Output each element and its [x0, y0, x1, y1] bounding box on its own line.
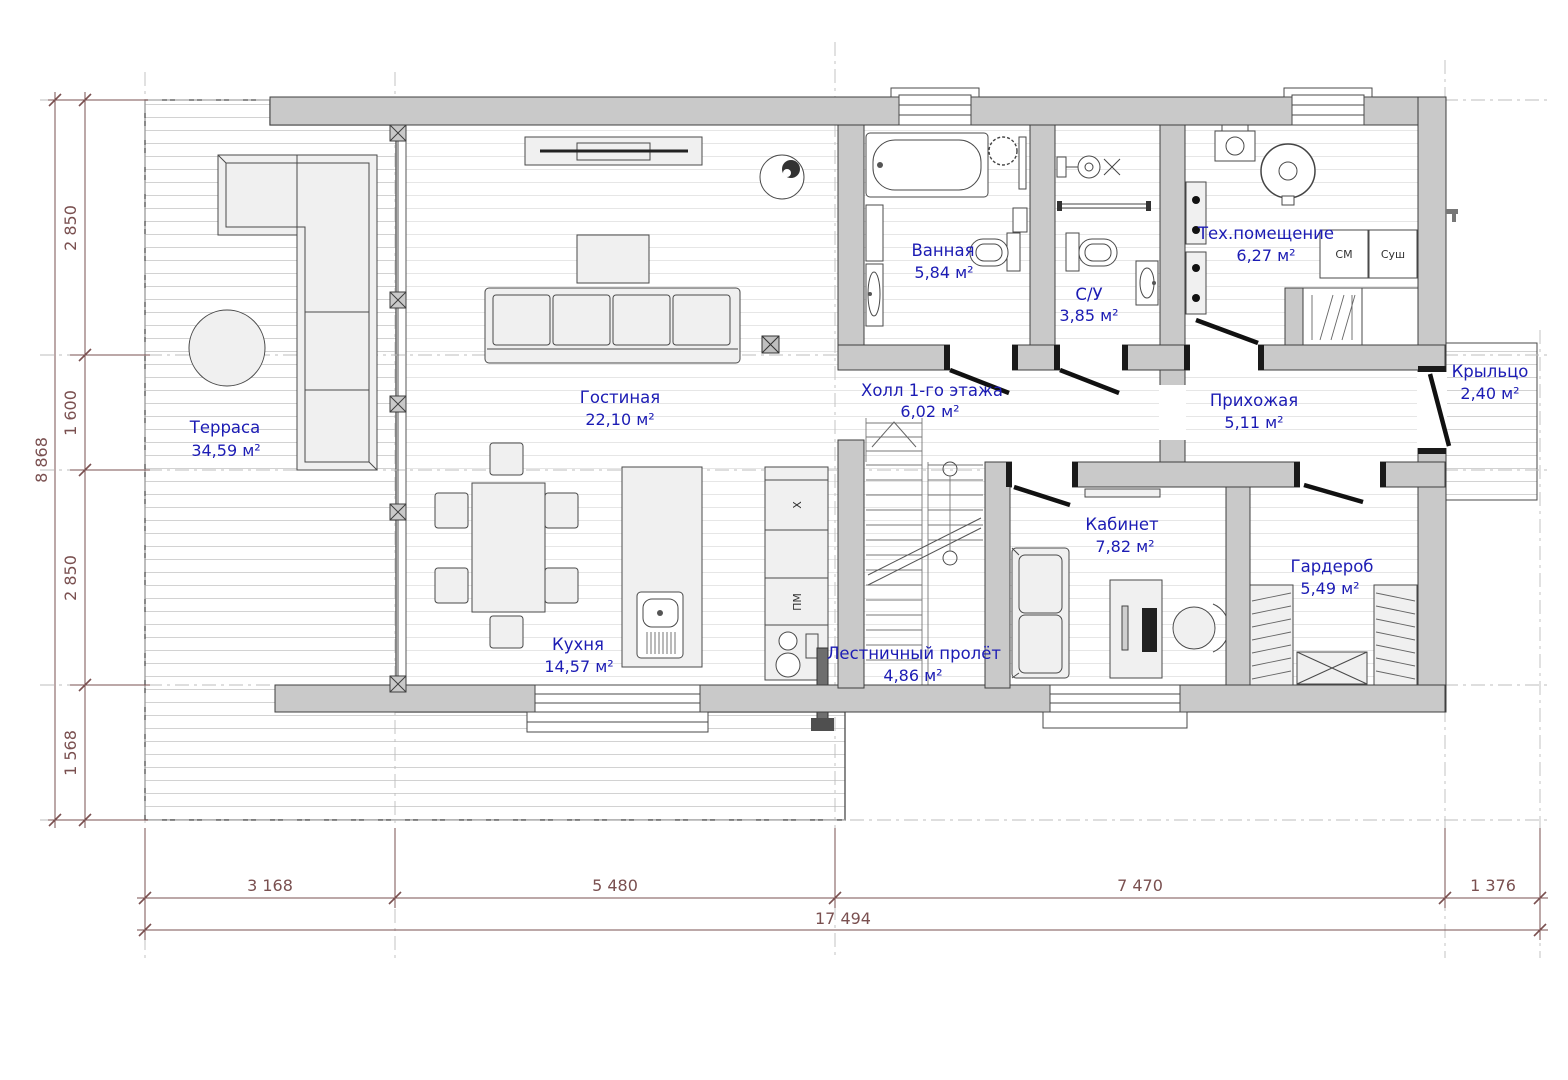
- dishwasher-label: ПМ: [791, 593, 804, 611]
- label-living: Гостиная: [580, 388, 660, 407]
- towel-radiator: [1019, 137, 1026, 189]
- label-tech: Тех.помещение: [1197, 224, 1334, 243]
- kitchen-island: [622, 467, 702, 667]
- area-kitchen: 14,57 м²: [544, 657, 613, 676]
- outdoor-tap-icon: [1446, 209, 1458, 222]
- bathroom-wall-box: [1013, 208, 1027, 232]
- dim-bottom-2: 5 480: [592, 876, 638, 895]
- area-terrace: 34,59 м²: [191, 441, 260, 460]
- bathroom-heater: [989, 137, 1017, 165]
- wc-basin: [1136, 261, 1158, 305]
- area-wc: 3,85 м²: [1059, 306, 1118, 325]
- dim-left-2: 1 600: [61, 390, 80, 436]
- area-tech: 6,27 м²: [1236, 246, 1295, 265]
- area-porch: 2,40 м²: [1460, 384, 1519, 403]
- dim-left-total: 8 868: [32, 437, 51, 483]
- dim-left-3: 2 850: [61, 555, 80, 601]
- area-office: 7,82 м²: [1095, 537, 1154, 556]
- washer-label: СМ: [1335, 248, 1352, 261]
- area-entry: 5,11 м²: [1224, 413, 1283, 432]
- hob-label: X: [791, 501, 804, 509]
- label-entry: Прихожая: [1210, 391, 1298, 410]
- bathtub: [866, 133, 988, 197]
- living-sofa: [485, 288, 740, 363]
- floor-lamp: [760, 155, 804, 199]
- washer-dryer: СМ Суш: [1320, 230, 1417, 278]
- dryer-label: Суш: [1381, 248, 1405, 261]
- terrace-round-table: [189, 310, 265, 386]
- label-hall: Холл 1-го этажа: [861, 381, 1003, 400]
- office-desk: [1110, 580, 1162, 678]
- dim-left-1: 2 850: [61, 205, 80, 251]
- label-wc: С/У: [1075, 285, 1102, 304]
- label-office: Кабинет: [1085, 515, 1159, 534]
- office-sofa: [1012, 548, 1069, 678]
- dim-left-4: 1 568: [61, 730, 80, 776]
- floor-outlet-marker: [762, 336, 779, 353]
- dim-bottom-4: 1 376: [1470, 876, 1516, 895]
- floor-plan: X ПМ: [0, 0, 1568, 1080]
- dim-bottom-3: 7 470: [1117, 876, 1163, 895]
- dim-bottom-total: 17 494: [815, 909, 871, 928]
- label-terrace: Терраса: [189, 418, 260, 437]
- bathroom-vanity: [866, 205, 883, 326]
- office-shelf: [1085, 489, 1160, 497]
- area-bathroom: 5,84 м²: [914, 263, 973, 282]
- tv-console: [525, 137, 702, 165]
- label-kitchen: Кухня: [552, 635, 604, 654]
- area-wardrobe: 5,49 м²: [1300, 579, 1359, 598]
- label-bathroom: Ванная: [911, 241, 974, 260]
- coffee-table: [577, 235, 649, 283]
- tech-closet: [1303, 288, 1418, 345]
- area-hall: 6,02 м²: [900, 402, 959, 421]
- label-stairs: Лестничный пролёт: [827, 644, 1001, 663]
- label-wardrobe: Гардероб: [1291, 557, 1374, 576]
- label-porch: Крыльцо: [1452, 362, 1529, 381]
- area-stairs: 4,86 м²: [883, 666, 942, 685]
- area-living: 22,10 м²: [585, 410, 654, 429]
- dim-bottom-1: 3 168: [247, 876, 293, 895]
